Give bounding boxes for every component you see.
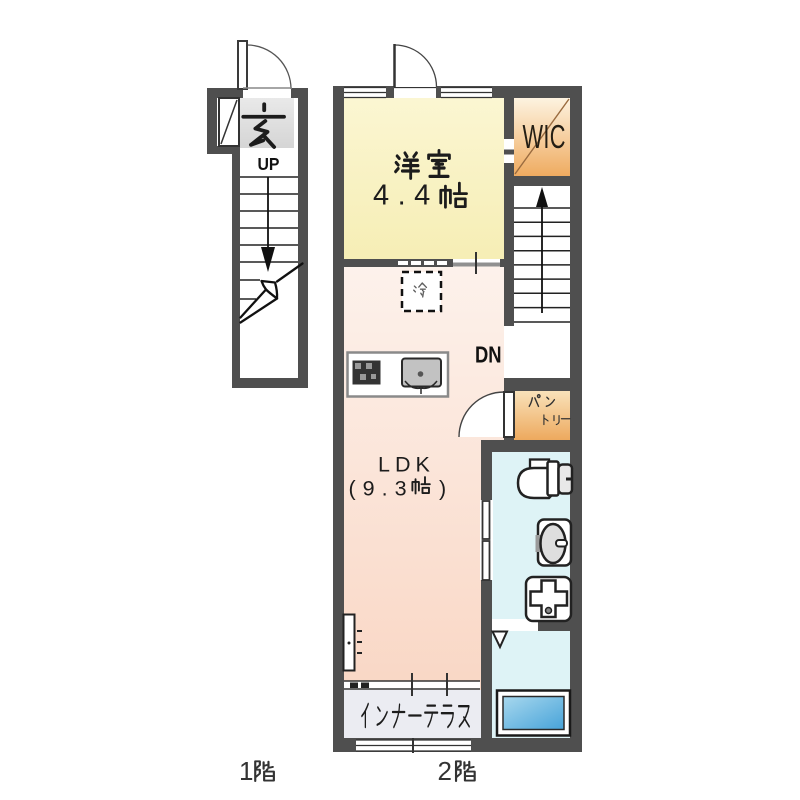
svg-text:DN: DN xyxy=(475,343,502,369)
svg-text:1: 1 xyxy=(239,756,253,786)
svg-text:LDK: LDK xyxy=(378,453,435,477)
svg-text:): ) xyxy=(439,477,446,501)
svg-text:UP: UP xyxy=(258,154,280,174)
svg-text:4.4: 4.4 xyxy=(373,180,439,212)
svg-text:(9.3: (9.3 xyxy=(349,477,414,501)
svg-text:WIC: WIC xyxy=(523,117,566,155)
svg-text:2: 2 xyxy=(438,756,452,786)
